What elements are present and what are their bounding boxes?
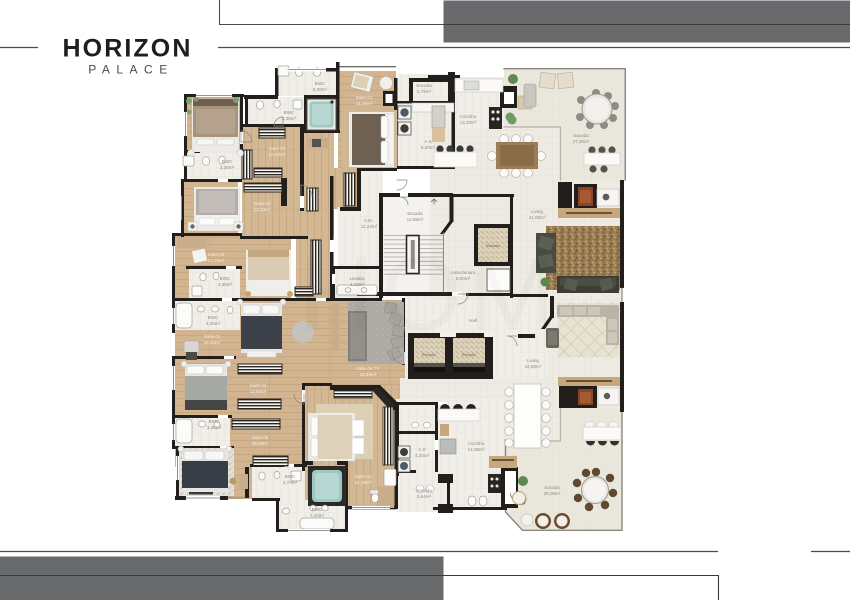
svg-text:17,75m²: 17,75m²	[208, 258, 225, 263]
svg-text:Sacada: Sacada	[416, 488, 432, 493]
svg-text:BWC: BWC	[284, 110, 295, 115]
svg-text:3,78m²: 3,78m²	[283, 480, 298, 485]
svg-text:Suite 02: Suite 02	[204, 334, 221, 339]
svg-text:BWC: BWC	[312, 507, 323, 512]
svg-text:14,05m²: 14,05m²	[468, 447, 485, 452]
svg-text:HOM: HOM	[299, 236, 562, 353]
svg-text:29,00m²: 29,00m²	[544, 491, 561, 496]
svg-text:11,23m²: 11,23m²	[361, 224, 378, 229]
svg-text:14,95m²: 14,95m²	[407, 217, 424, 222]
svg-text:Suite 05: Suite 05	[252, 435, 269, 440]
svg-text:Living: Living	[527, 358, 539, 363]
svg-text:41,00m²: 41,00m²	[529, 215, 546, 220]
svg-text:3,38m²: 3,38m²	[206, 321, 221, 326]
svg-text:Cozinha: Cozinha	[468, 441, 485, 446]
svg-text:Suite 04: Suite 04	[250, 383, 267, 388]
svg-text:13,20m²: 13,20m²	[460, 120, 477, 125]
svg-text:A.S: A.S	[418, 447, 425, 452]
svg-text:Sala de TV: Sala de TV	[357, 366, 381, 371]
svg-text:Suite 03: Suite 03	[208, 252, 225, 257]
svg-text:3,64m²: 3,64m²	[417, 494, 432, 499]
svg-text:BWC: BWC	[220, 276, 231, 281]
svg-text:BWC: BWC	[209, 419, 220, 424]
svg-text:42,50m²: 42,50m²	[525, 364, 542, 369]
svg-text:BWC: BWC	[285, 474, 296, 479]
svg-text:A.S: A.S	[424, 139, 431, 144]
svg-text:Suite 01: Suite 01	[356, 95, 373, 100]
svg-text:BWC: BWC	[315, 81, 326, 86]
svg-text:Elevador: Elevador	[422, 353, 437, 357]
svg-text:16,20m²: 16,20m²	[269, 152, 286, 157]
svg-text:13,60m²: 13,60m²	[250, 389, 267, 394]
svg-text:16,50m²: 16,50m²	[204, 340, 221, 345]
svg-text:Sacada: Sacada	[416, 83, 432, 88]
svg-text:5,30m²: 5,30m²	[421, 145, 436, 150]
svg-text:HORIZON: HORIZON	[63, 35, 193, 63]
svg-text:18,00m²: 18,00m²	[252, 441, 269, 446]
svg-text:18,40m²: 18,40m²	[360, 372, 377, 377]
svg-text:3,38m²: 3,38m²	[218, 282, 233, 287]
svg-text:BWC: BWC	[208, 315, 219, 320]
svg-text:24,10m²: 24,10m²	[355, 480, 372, 485]
svg-text:BWC: BWC	[222, 159, 233, 164]
svg-text:13,20m²: 13,20m²	[254, 207, 271, 212]
svg-text:Suite 03: Suite 03	[269, 146, 286, 151]
svg-text:27,30m²: 27,30m²	[573, 139, 590, 144]
svg-text:Sacada: Sacada	[573, 133, 589, 138]
svg-text:Cozinha: Cozinha	[460, 114, 477, 119]
svg-text:3,38m²: 3,38m²	[207, 425, 222, 430]
svg-text:6,00m²: 6,00m²	[313, 87, 328, 92]
svg-text:Suite 01: Suite 01	[355, 474, 372, 479]
svg-text:Circ.: Circ.	[364, 218, 373, 223]
svg-text:3,38m²: 3,38m²	[282, 116, 297, 121]
svg-text:7,40m²: 7,40m²	[310, 513, 325, 518]
svg-text:21,25m²: 21,25m²	[356, 101, 373, 106]
svg-text:2,75m²: 2,75m²	[417, 89, 432, 94]
svg-text:Sacada: Sacada	[544, 485, 560, 490]
svg-text:Living: Living	[531, 209, 543, 214]
svg-text:4,20m²: 4,20m²	[415, 453, 430, 458]
svg-text:3,38m²: 3,38m²	[220, 165, 235, 170]
svg-text:Suite 04: Suite 04	[254, 201, 271, 206]
svg-text:PALACE: PALACE	[88, 63, 173, 77]
svg-text:Elevador: Elevador	[462, 353, 477, 357]
svg-text:Escada: Escada	[407, 211, 423, 216]
